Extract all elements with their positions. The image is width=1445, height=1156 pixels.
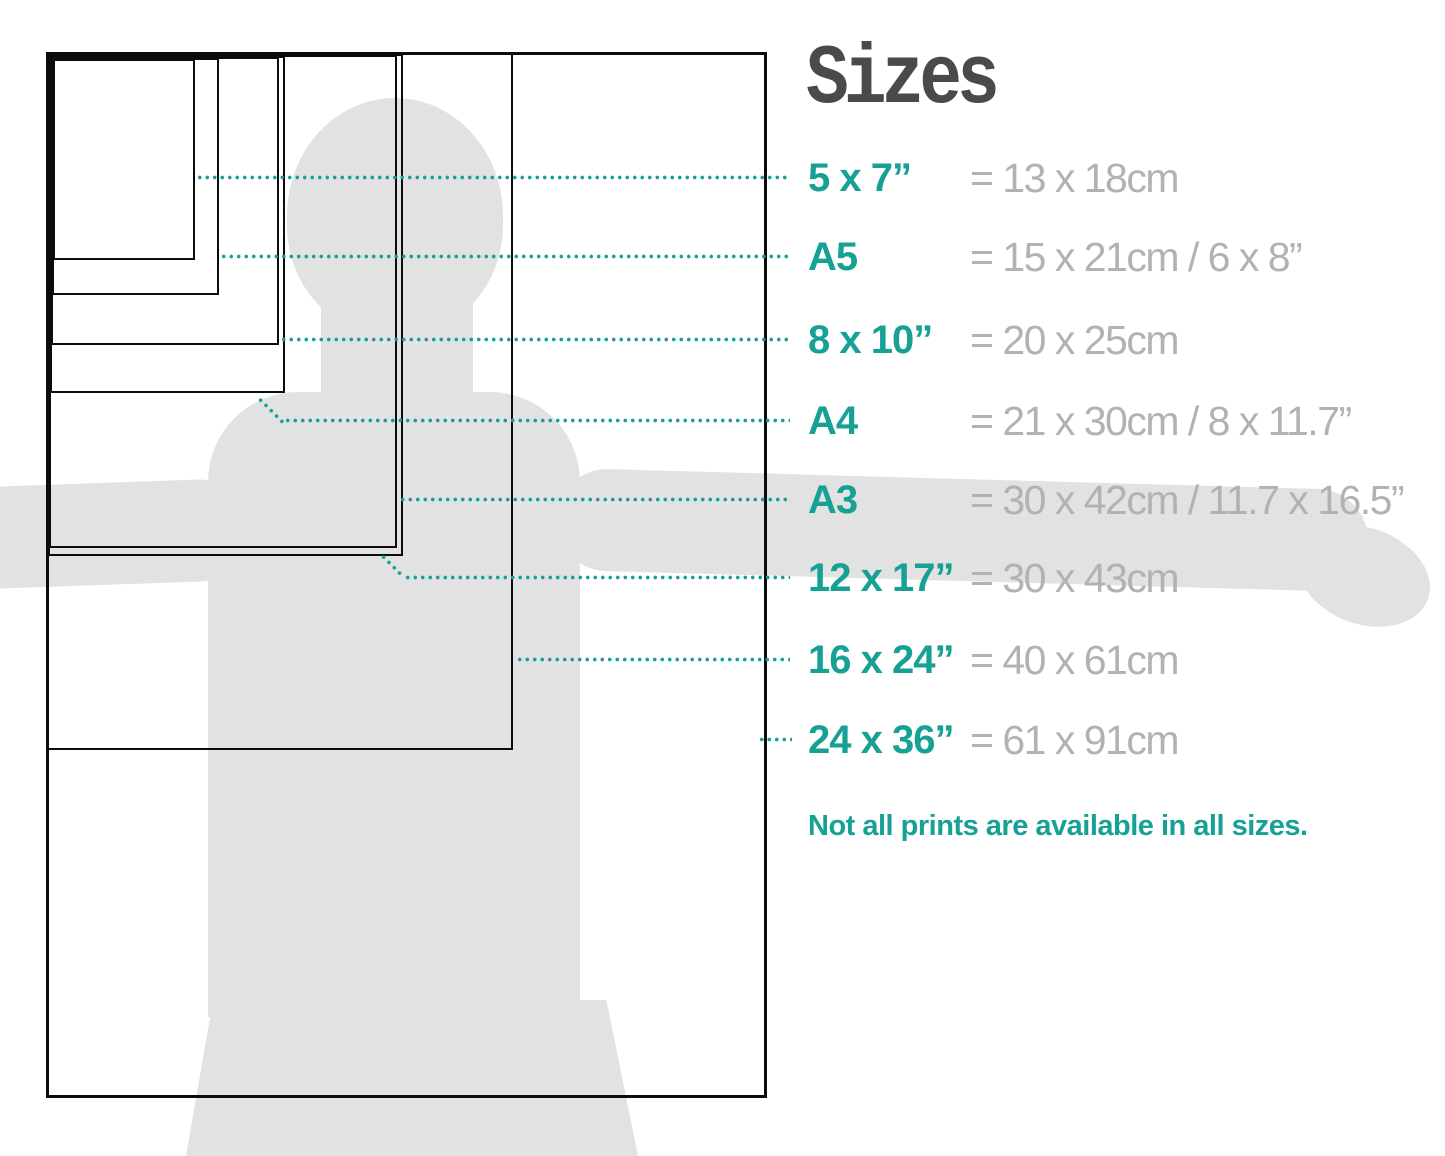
size-value-a3: = 30 x 42cm / 11.7 x 16.5” [970,476,1403,524]
availability-note: Not all prints are available in all size… [808,810,1308,843]
size-label-12x17: 12 x 17” [808,554,970,602]
leader-line-12x17 [404,575,790,580]
size-row-a5: A5= 15 x 21cm / 6 x 8” [808,233,1428,281]
leader-line-8x10 [280,337,790,342]
leader-line-5x7 [196,175,790,180]
size-label-8x10: 8 x 10” [808,316,970,364]
size-label-a5: A5 [808,233,970,281]
size-guide-infographic: Sizes 5 x 7”= 13 x 18cm A5= 15 x 21cm / … [0,0,1445,1156]
size-row-5x7: 5 x 7”= 13 x 18cm [808,154,1428,202]
size-row-a3: A3= 30 x 42cm / 11.7 x 16.5” [808,476,1428,524]
size-row-8x10: 8 x 10”= 20 x 25cm [808,316,1428,364]
leader-line-a4 [284,418,790,423]
size-label-a4: A4 [808,397,970,445]
leader-line-24x36 [758,737,792,742]
size-row-16x24: 16 x 24”= 40 x 61cm [808,636,1428,684]
size-value-8x10: = 20 x 25cm [970,316,1178,364]
size-value-5x7: = 13 x 18cm [970,154,1178,202]
leader-line-a3 [399,497,790,502]
leader-line-16x24 [516,657,790,662]
size-label-a3: A3 [808,476,970,524]
size-value-a4: = 21 x 30cm / 8 x 11.7” [970,397,1351,445]
size-value-a5: = 15 x 21cm / 6 x 8” [970,233,1301,281]
size-value-16x24: = 40 x 61cm [970,636,1178,684]
size-value-12x17: = 30 x 43cm [970,554,1178,602]
leader-line-a5 [220,254,790,259]
size-value-24x36: = 61 x 91cm [970,716,1178,764]
size-row-12x17: 12 x 17”= 30 x 43cm [808,554,1428,602]
size-label-5x7: 5 x 7” [808,154,970,202]
size-row-24x36: 24 x 36”= 61 x 91cm [808,716,1428,764]
size-rect-5x7 [53,59,195,260]
size-label-16x24: 16 x 24” [808,636,970,684]
size-label-24x36: 24 x 36” [808,716,970,764]
page-title: Sizes [806,36,995,126]
size-row-a4: A4= 21 x 30cm / 8 x 11.7” [808,397,1428,445]
